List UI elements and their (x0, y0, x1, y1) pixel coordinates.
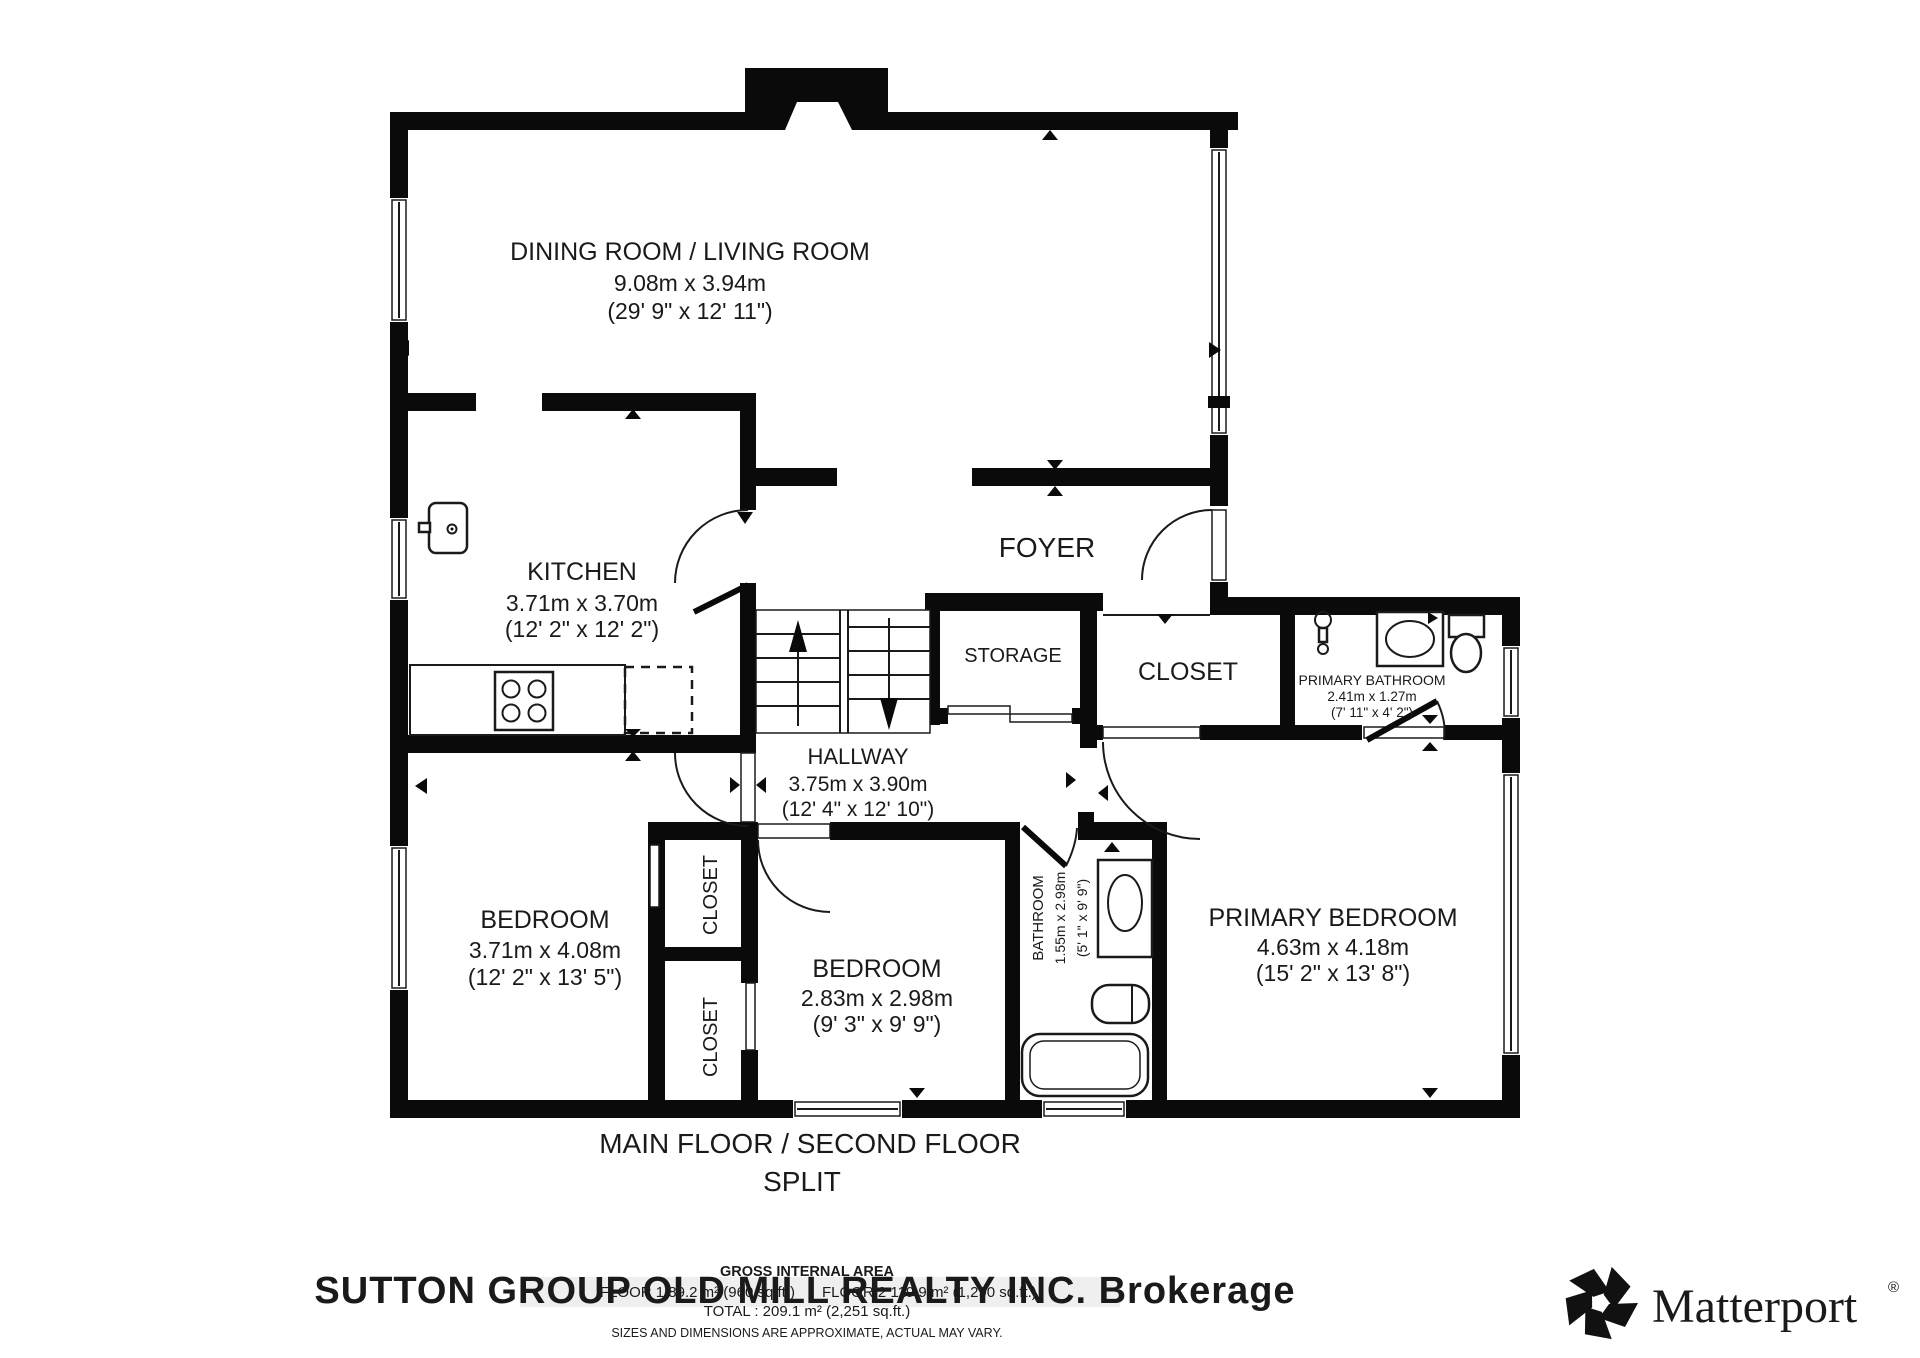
window-bathroom-bottom (1042, 1098, 1126, 1120)
hallway-dims-m: 3.75m x 3.90m (789, 773, 928, 796)
kitchen-dims-m: 3.71m x 3.70m (506, 590, 658, 616)
door-bedroom-middle (758, 824, 830, 912)
bedroom-middle-label: BEDROOM (812, 955, 941, 983)
primary-bathroom-dims-ft: (7' 11" x 4' 2") (1331, 705, 1413, 720)
floor2-area: FLOOR 2 119.9 m² (1,290 sq.ft.) (822, 1284, 1037, 1301)
living-room-dims-ft: (29' 9" x 12' 11") (607, 298, 772, 324)
closet-lower-label: CLOSET (700, 997, 722, 1077)
bedroom-middle-dims-m: 2.83m x 2.98m (801, 985, 953, 1011)
primary-bedroom-label: PRIMARY BEDROOM (1208, 904, 1457, 932)
total-area: TOTAL : 209.1 m² (2,251 sq.ft.) (704, 1303, 910, 1320)
window-living-right (1208, 148, 1230, 435)
hallway-dims-ft: (12' 4" x 12' 10") (782, 798, 935, 821)
primary-bathroom-dims-m: 2.41m x 1.27m (1327, 689, 1416, 704)
primary-bedroom-dims-m: 4.63m x 4.18m (1257, 934, 1409, 960)
door-storage-sliding (948, 706, 1072, 724)
bedroom-left-dims-m: 3.71m x 4.08m (469, 937, 621, 963)
primary-bath-sink-icon (1315, 612, 1331, 654)
floor1-area: FLOOR 1 89.2 m² (960 sq.ft.) (600, 1284, 795, 1301)
bathtub-icon (1022, 1034, 1148, 1096)
bedroom-middle-dims-ft: (9' 3" x 9' 9") (813, 1011, 942, 1037)
window-primary-bedroom-right (1500, 773, 1522, 1055)
door-bathroom (1023, 827, 1077, 866)
window-kitchen-left (388, 518, 410, 600)
window-bedroom-middle-bottom (793, 1098, 902, 1120)
closet-upper-label: CLOSET (700, 855, 722, 935)
door-kitchen (675, 510, 748, 612)
kitchen-dims-ft: (12' 2" x 12' 2") (505, 616, 659, 642)
bathroom-dims-m: 1.55m x 2.98m (1052, 872, 1068, 965)
disclaimer-text: SIZES AND DIMENSIONS ARE APPROXIMATE, AC… (611, 1326, 1002, 1340)
bedroom-left-dims-ft: (12' 2" x 13' 5") (468, 964, 622, 990)
bedroom-left-label: BEDROOM (480, 906, 609, 934)
door-closet-lower-sliding (746, 983, 755, 1050)
primary-bedroom-dims-ft: (15' 2" x 13' 8") (1256, 960, 1410, 986)
closet-front-label: CLOSET (1138, 658, 1238, 686)
footer: SUTTON GROUP OLD MILL REALTY INC. Broker… (314, 1264, 1295, 1340)
floor-plan-page: DINING ROOM / LIVING ROOM 9.08m x 3.94m … (0, 0, 1920, 1358)
bathroom-shower-icon (1098, 860, 1152, 957)
plan-title: MAIN FLOOR / SECOND FLOOR SPLIT (599, 1128, 1021, 1197)
floor-plan-canvas: DINING ROOM / LIVING ROOM 9.08m x 3.94m … (0, 0, 1920, 1358)
living-room-dims-m: 9.08m x 3.94m (614, 270, 766, 296)
foyer-label: FOYER (999, 532, 1095, 563)
storage-label: STORAGE (964, 645, 1061, 667)
window-primary-bath-right (1500, 646, 1522, 718)
matterport-logo: Matterport ® (1555, 1261, 1899, 1346)
plan-title-line1: MAIN FLOOR / SECOND FLOOR (599, 1128, 1021, 1159)
dishwasher-icon (625, 667, 692, 733)
window-bedroom-left (388, 846, 410, 990)
staircase (756, 610, 930, 733)
bathroom-toilet-icon (1092, 985, 1149, 1023)
matterport-pinwheel-icon (1555, 1261, 1638, 1346)
matterport-wordmark: Matterport (1652, 1280, 1858, 1333)
window-living-left (388, 198, 410, 322)
primary-bathroom-label: PRIMARY BATHROOM (1298, 672, 1445, 688)
room-labels: DINING ROOM / LIVING ROOM 9.08m x 3.94m … (468, 238, 1458, 1077)
kitchen-label: KITCHEN (527, 558, 637, 586)
hallway-label: HALLWAY (807, 744, 908, 769)
primary-bath-toilet-icon (1449, 615, 1484, 672)
door-front-entry (1142, 506, 1230, 582)
plan-title-line2: SPLIT (763, 1166, 841, 1197)
living-room-label: DINING ROOM / LIVING ROOM (510, 238, 870, 266)
primary-bath-shower-icon (1377, 612, 1443, 666)
kitchen-sink-icon (419, 503, 467, 553)
stove-icon (495, 672, 553, 730)
registered-mark: ® (1888, 1279, 1899, 1296)
gross-area-heading: GROSS INTERNAL AREA (720, 1264, 895, 1280)
door-closet-upper-sliding (650, 845, 659, 907)
bathroom-label: BATHROOM (1030, 875, 1047, 961)
door-bedroom-left (675, 753, 755, 826)
bathroom-dims-ft: (5' 1" x 9' 9") (1074, 879, 1090, 957)
